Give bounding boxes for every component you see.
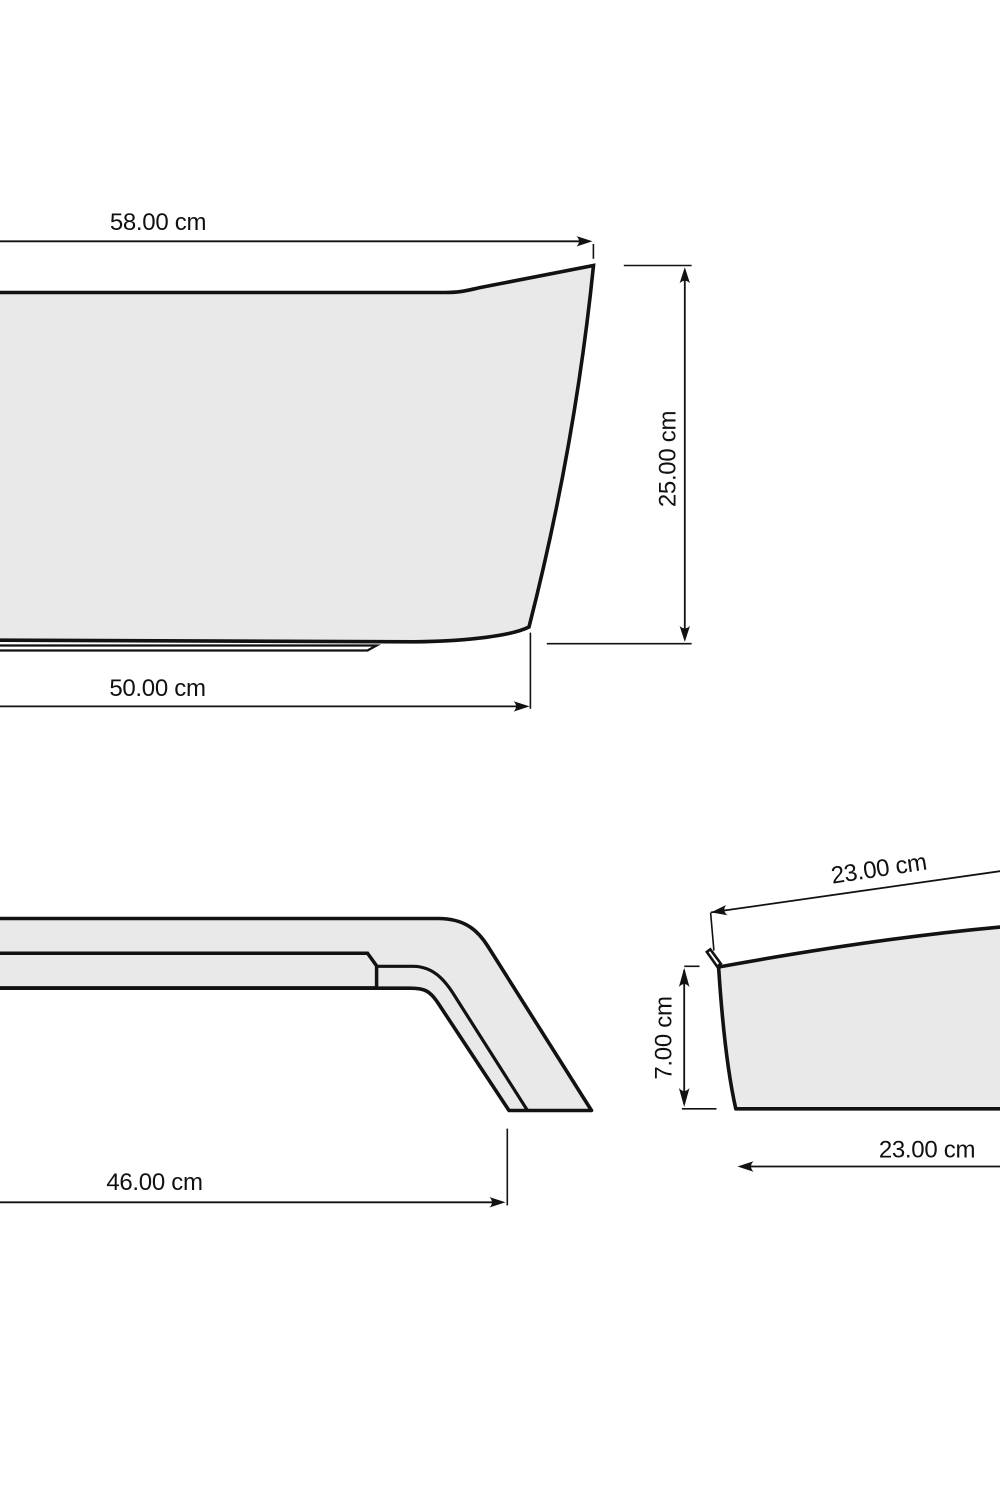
svg-text:46.00 cm: 46.00 cm xyxy=(106,1169,202,1196)
svg-text:50.00 cm: 50.00 cm xyxy=(109,675,205,702)
svg-text:25.00 cm: 25.00 cm xyxy=(655,411,682,507)
svg-text:58.00 cm: 58.00 cm xyxy=(110,209,206,236)
svg-text:7.00 cm: 7.00 cm xyxy=(651,996,678,1079)
svg-text:23.00 cm: 23.00 cm xyxy=(879,1137,975,1164)
